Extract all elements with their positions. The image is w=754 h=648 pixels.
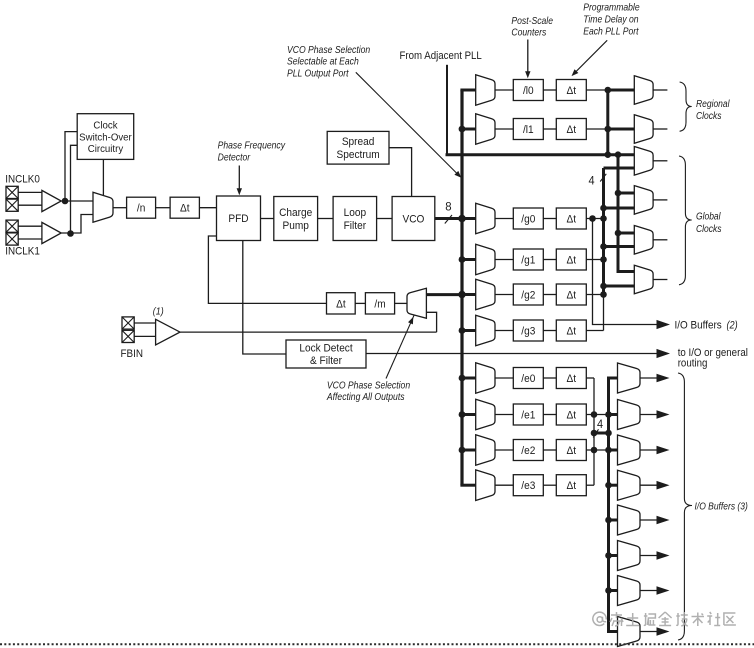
svg-text:Counters: Counters [511,27,546,39]
svg-text:Circuitry: Circuitry [88,144,124,155]
svg-text:4: 4 [589,175,595,187]
svg-text:VCO Phase Selection: VCO Phase Selection [327,380,410,392]
svg-text:Each PLL Port: Each PLL Port [583,26,639,38]
svg-text:routing: routing [678,358,708,370]
svg-text:/g1: /g1 [521,254,535,266]
svg-text:/e1: /e1 [521,409,535,421]
svg-text:I/O Buffers: I/O Buffers [675,320,722,331]
svg-text:Switch-Over: Switch-Over [79,132,132,143]
svg-text:Δt: Δt [567,124,577,136]
svg-text:/m: /m [374,298,385,310]
svg-text:8: 8 [445,200,451,213]
svg-text:Δt: Δt [567,289,577,301]
svg-text:FBIN: FBIN [121,349,144,361]
svg-text:Affecting All Outputs: Affecting All Outputs [326,391,405,403]
svg-text:Charge: Charge [279,207,312,219]
svg-text:(1): (1) [153,306,164,318]
svg-text:Filter: Filter [344,220,367,232]
svg-text:Δt: Δt [567,85,577,97]
svg-text:Regional: Regional [696,98,730,109]
svg-text:Δt: Δt [567,373,577,385]
svg-text:Loop: Loop [344,207,367,219]
svg-text:VCO: VCO [403,213,425,225]
svg-text:Lock Detect: Lock Detect [299,342,352,354]
svg-text:/e2: /e2 [521,445,535,457]
svg-text:INCLK1: INCLK1 [5,246,40,258]
svg-text:Δt: Δt [567,480,577,492]
svg-text:Δt: Δt [180,202,190,214]
svg-text:Δt: Δt [567,254,577,266]
svg-text:Post-Scale: Post-Scale [511,15,553,27]
svg-text:/e3: /e3 [521,480,535,492]
svg-text:Programmable: Programmable [583,2,639,14]
svg-text:INCLK0: INCLK0 [5,174,40,186]
svg-text:Phase Frequency: Phase Frequency [218,140,287,152]
svg-text:Δt: Δt [567,409,577,421]
svg-text:/n: /n [137,202,146,214]
svg-text:I/O Buffers (3): I/O Buffers (3) [695,501,748,512]
svg-text:Detector: Detector [218,152,251,164]
svg-text:(2): (2) [727,320,738,332]
svg-text:Clocks: Clocks [696,111,722,122]
svg-text:VCO Phase Selection: VCO Phase Selection [287,44,370,56]
svg-text:Δt: Δt [567,445,577,457]
svg-text:/l1: /l1 [523,124,534,136]
svg-text:Spread: Spread [342,136,375,148]
svg-text:/l0: /l0 [523,85,534,97]
svg-text:PFD: PFD [228,213,249,225]
svg-text:Time Delay on: Time Delay on [583,14,638,26]
svg-text:Clocks: Clocks [696,223,722,234]
svg-text:/g2: /g2 [521,289,535,301]
svg-text:/g0: /g0 [521,213,535,225]
svg-text:Spectrum: Spectrum [336,149,379,161]
svg-text:Δt: Δt [336,298,346,310]
svg-text:/g3: /g3 [521,325,535,337]
svg-text:Clock: Clock [93,120,118,131]
svg-text:Global: Global [696,211,721,222]
svg-text:/e0: /e0 [521,373,535,385]
svg-text:Selectable at Each: Selectable at Each [287,56,359,68]
svg-text:From Adjacent PLL: From Adjacent PLL [400,50,483,62]
svg-text:Δt: Δt [567,325,577,337]
svg-text:Pump: Pump [283,220,310,232]
svg-text:Δt: Δt [567,213,577,225]
svg-text:& Filter: & Filter [310,355,342,367]
svg-text:PLL Output Port: PLL Output Port [287,68,349,80]
